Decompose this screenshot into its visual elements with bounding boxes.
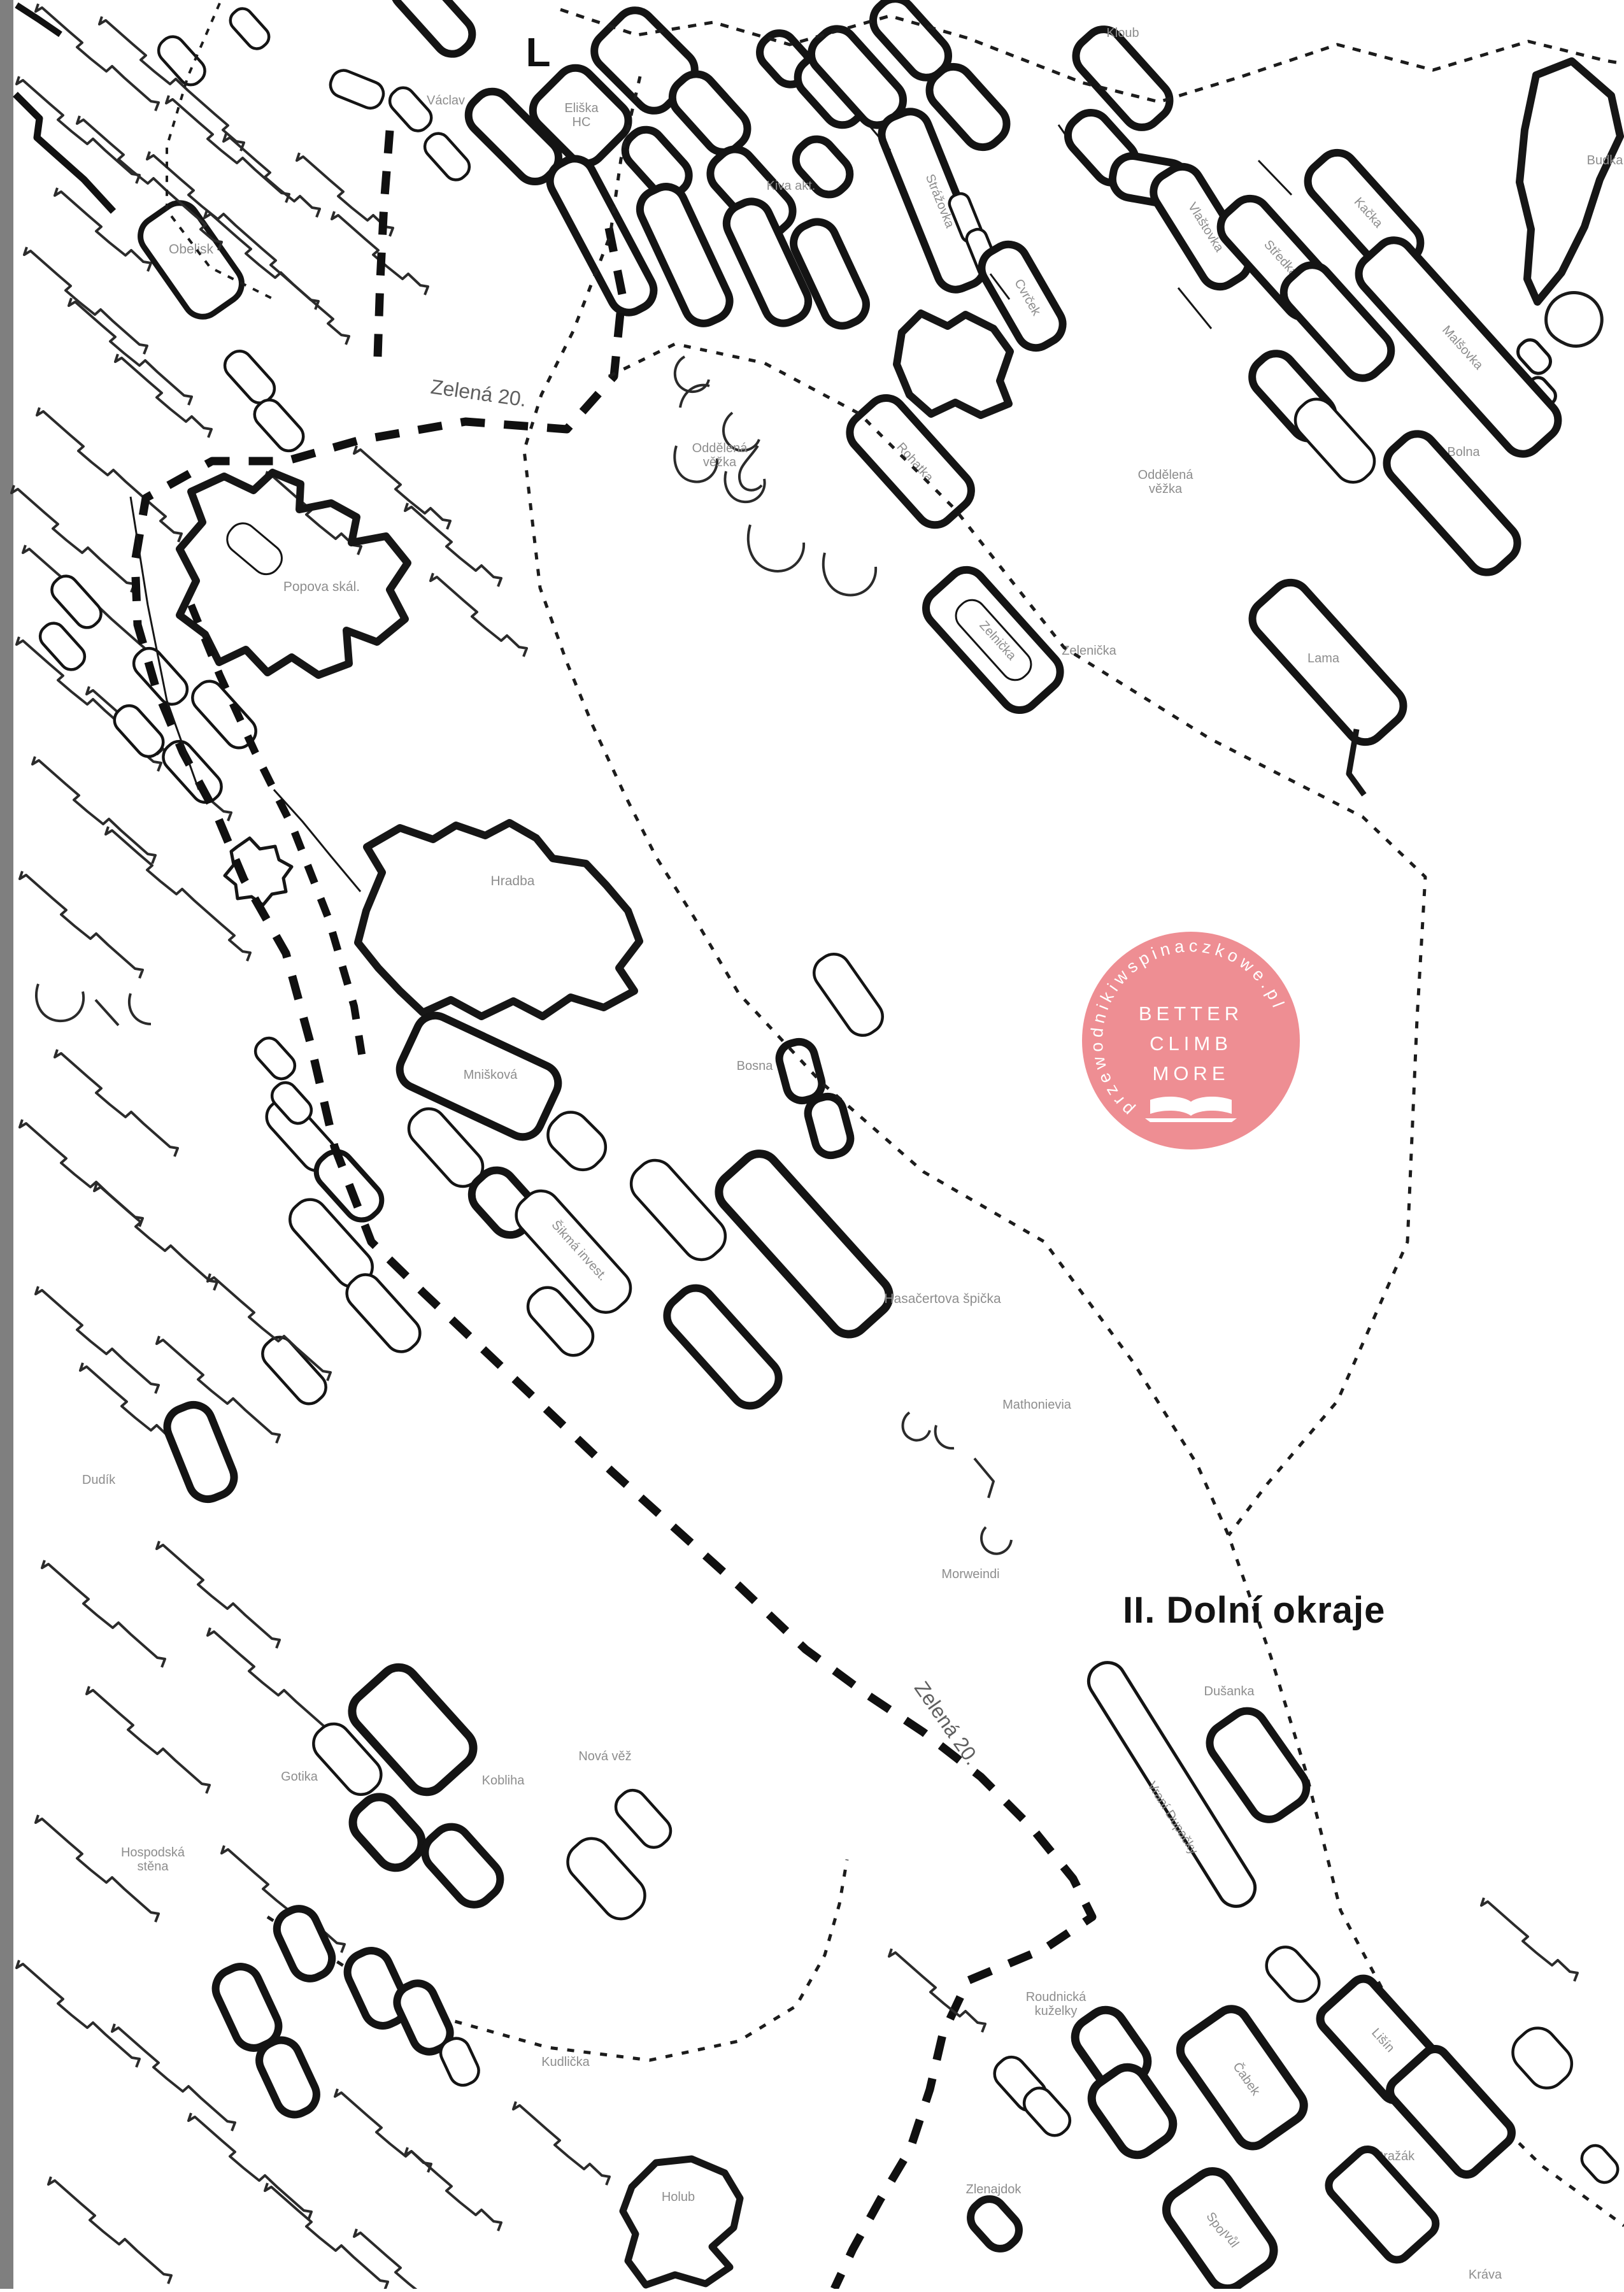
svg-text:CLIMB: CLIMB bbox=[1150, 1032, 1232, 1055]
svg-text:L: L bbox=[525, 29, 550, 75]
svg-text:Budka: Budka bbox=[1587, 153, 1624, 167]
svg-text:Oddělená: Oddělená bbox=[1138, 468, 1194, 482]
svg-text:Mathonievia: Mathonievia bbox=[1002, 1398, 1072, 1412]
svg-text:Hospodská: Hospodská bbox=[121, 1846, 185, 1860]
svg-text:Hradba: Hradba bbox=[491, 874, 535, 888]
svg-text:Lama: Lama bbox=[1307, 651, 1340, 666]
svg-text:Roudnická: Roudnická bbox=[1026, 1990, 1086, 2004]
svg-text:kuželky: kuželky bbox=[1035, 2004, 1078, 2018]
svg-text:II. Dolní okraje: II. Dolní okraje bbox=[1123, 1590, 1385, 1631]
svg-text:Popova skál.: Popova skál. bbox=[283, 580, 360, 594]
svg-text:HC: HC bbox=[573, 115, 591, 129]
svg-text:Kobliha: Kobliha bbox=[482, 1774, 525, 1788]
svg-text:Mnišková: Mnišková bbox=[464, 1068, 518, 1082]
svg-text:Kloub: Kloub bbox=[1106, 26, 1139, 40]
svg-text:Hasačertova špička: Hasačertova špička bbox=[884, 1292, 1001, 1306]
svg-text:Bosna: Bosna bbox=[737, 1059, 774, 1073]
svg-text:Dušanka: Dušanka bbox=[1204, 1684, 1255, 1698]
svg-text:Dudík: Dudík bbox=[82, 1473, 116, 1487]
svg-text:Zelenička: Zelenička bbox=[1062, 644, 1116, 658]
svg-text:věžka: věžka bbox=[703, 455, 737, 469]
svg-text:Václav: Václav bbox=[427, 94, 465, 108]
svg-text:Holub: Holub bbox=[662, 2190, 695, 2204]
svg-text:Nová věž: Nová věž bbox=[578, 1749, 631, 1763]
svg-text:MORE: MORE bbox=[1153, 1062, 1230, 1085]
svg-text:Bolna: Bolna bbox=[1447, 445, 1480, 459]
svg-text:Eliška: Eliška bbox=[564, 101, 599, 115]
svg-text:Kudlička: Kudlička bbox=[541, 2055, 590, 2069]
svg-text:Zlenajdok: Zlenajdok bbox=[966, 2182, 1022, 2196]
svg-text:Kiva akt.: Kiva akt. bbox=[767, 179, 816, 193]
svg-text:Morweindi: Morweindi bbox=[941, 1567, 999, 1581]
svg-text:Oddělená: Oddělená bbox=[692, 441, 748, 455]
svg-text:stěna: stěna bbox=[138, 1860, 169, 1874]
svg-text:Kráva: Kráva bbox=[1469, 2268, 1502, 2282]
svg-text:Gotika: Gotika bbox=[281, 1770, 318, 1784]
svg-text:BETTER: BETTER bbox=[1139, 1002, 1243, 1025]
svg-text:věžka: věžka bbox=[1149, 482, 1183, 496]
